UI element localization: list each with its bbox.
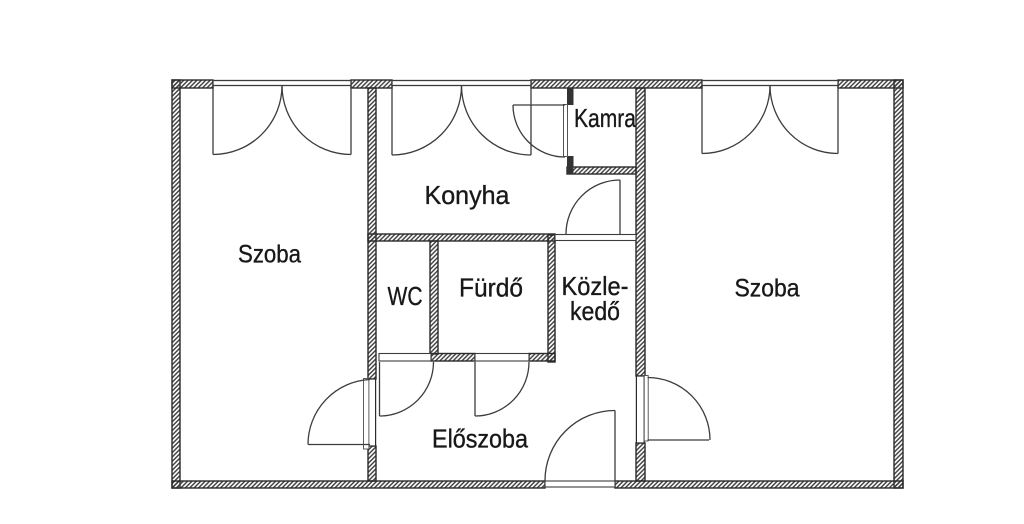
svg-text:kedő: kedő	[570, 296, 620, 326]
svg-text:Kamra: Kamra	[574, 103, 636, 133]
svg-text:WC: WC	[388, 281, 423, 311]
svg-text:Előszoba: Előszoba	[432, 424, 528, 454]
svg-text:Fürdő: Fürdő	[459, 273, 523, 303]
svg-text:Szoba: Szoba	[238, 241, 301, 269]
svg-text:Szoba: Szoba	[735, 275, 800, 303]
svg-text:Konyha: Konyha	[425, 180, 511, 210]
